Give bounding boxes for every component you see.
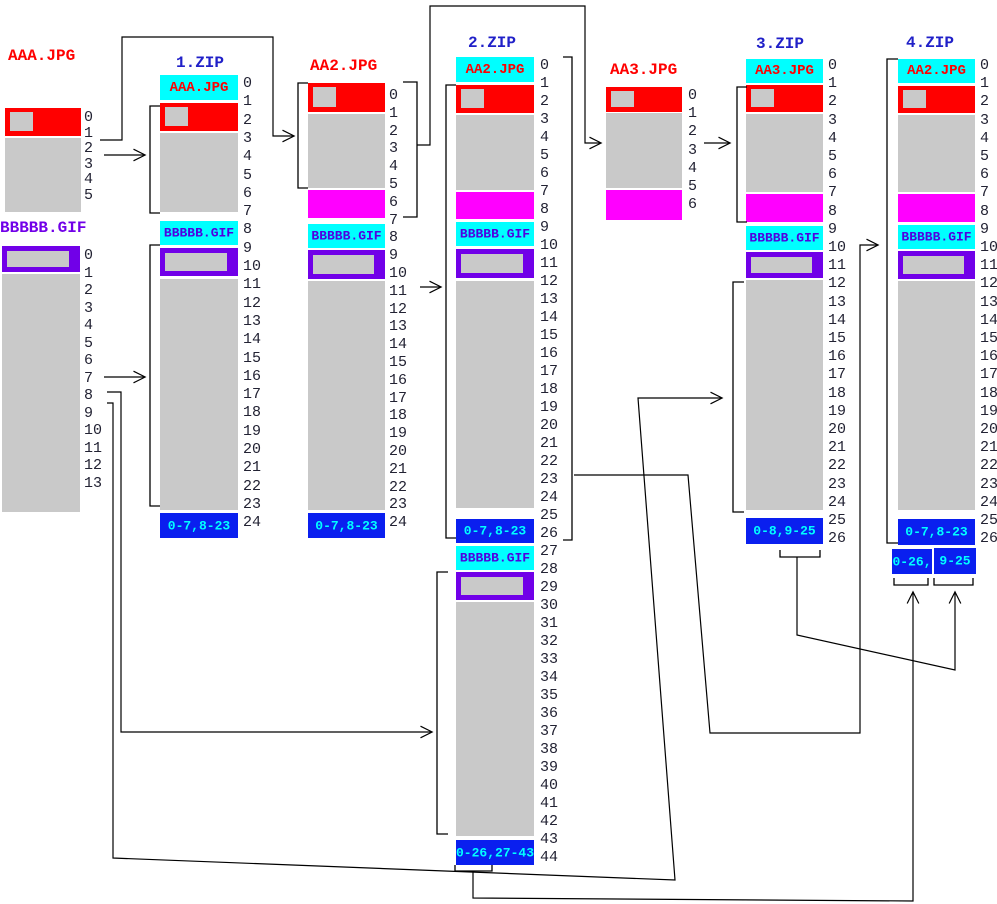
zip2-offsets-21: 21	[540, 436, 558, 452]
aa3-offsets-3: 3	[688, 143, 697, 159]
aaa-jpg-offsets-0: 0	[84, 110, 93, 126]
zip2-offsets-40: 40	[540, 778, 558, 794]
zip4-offsets-24: 24	[980, 495, 997, 511]
zip4-gif-data	[898, 281, 975, 510]
aa2-offsets-13: 13	[389, 319, 407, 335]
aaa-jpg-offsets-2: 2	[84, 141, 93, 157]
zip2-offsets-27: 27	[540, 544, 558, 560]
zip3-offsets-4: 4	[828, 131, 837, 147]
aa3-offsets-4: 4	[688, 161, 697, 177]
zip3-gif-local-header: BBBBB.GIF	[746, 226, 823, 250]
zip3-aa3-local-header: AA3.JPG	[746, 59, 823, 83]
zip4-aa2-local-header-label: AA2.JPG	[898, 64, 975, 78]
gray-square	[751, 89, 774, 107]
zip2-offsets-17: 17	[540, 364, 558, 380]
zip2-offsets-8: 8	[540, 202, 549, 218]
zip3-offsets-0: 0	[828, 58, 837, 74]
zip2-offsets-10: 10	[540, 238, 558, 254]
gray-inner-rect	[313, 255, 374, 274]
aa2-offsets-7: 7	[389, 213, 398, 229]
zip1-offsets-4: 4	[243, 149, 252, 165]
zip4-offsets-25: 25	[980, 513, 997, 529]
zip3-offsets-8: 8	[828, 204, 837, 220]
zip1-central-dir: 0-7,8-23	[160, 513, 238, 538]
zip2-offsets-41: 41	[540, 796, 558, 812]
zip2-gif-local-header-label: BBBBB.GIF	[456, 228, 534, 241]
aa3-new-data	[606, 190, 682, 220]
bbbbb-gif-offsets-2: 2	[84, 283, 93, 299]
zip1-central-dir-label: 0-7,8-23	[160, 519, 238, 532]
zip2-aa2-local-header: AA2.JPG	[456, 57, 534, 82]
zip4-offsets-17: 17	[980, 367, 997, 383]
gray-square	[903, 90, 926, 108]
zip1-offsets-2: 2	[243, 113, 252, 129]
zip2-offsets-44: 44	[540, 850, 558, 866]
gray-inner-rect	[165, 253, 227, 271]
gray-inner-rect	[903, 256, 964, 274]
aa2-offsets-24: 24	[389, 515, 407, 531]
zip1-offsets-6: 6	[243, 186, 252, 202]
zip4-offsets-1: 1	[980, 76, 989, 92]
zip2-aa2-data	[456, 115, 534, 190]
zip3-offsets-6: 6	[828, 167, 837, 183]
aa2-offsets-6: 6	[389, 195, 398, 211]
zip4-gif-local-header-label: BBBBB.GIF	[898, 231, 975, 244]
zip1-gif-purple	[160, 248, 238, 276]
zip3-offsets-10: 10	[828, 240, 846, 256]
gray-inner-rect	[751, 257, 812, 273]
aa3-jpg-title: AA3.JPG	[610, 62, 677, 78]
zip4-old-central-dir-label: 0-7,8-23	[898, 526, 975, 539]
zip4-offsets-21: 21	[980, 440, 997, 456]
zip4-cd-part1: 0-26,	[892, 549, 932, 574]
zip1-offsets-18: 18	[243, 405, 261, 421]
zip3-offsets-24: 24	[828, 495, 846, 511]
zip3-title: 3.ZIP	[756, 36, 804, 52]
zip3-offsets-25: 25	[828, 513, 846, 529]
aa3-offsets-2: 2	[688, 124, 697, 140]
zip2-offsets-1: 1	[540, 76, 549, 92]
aa2-offsets-5: 5	[389, 177, 398, 193]
bbbbb-gif-offsets-8: 8	[84, 388, 93, 404]
aa3-offsets-5: 5	[688, 179, 697, 195]
zip2-offsets-38: 38	[540, 742, 558, 758]
zip4-offsets-0: 0	[980, 58, 989, 74]
zip4-offsets-2: 2	[980, 94, 989, 110]
zip1-offsets-19: 19	[243, 424, 261, 440]
aa2-offsets-9: 9	[389, 248, 398, 264]
aa2-offsets-18: 18	[389, 408, 407, 424]
zip4-cd-part1-label: 0-26,	[892, 555, 932, 568]
zip4-offsets-18: 18	[980, 386, 997, 402]
bbbbb-gif-offsets-7: 7	[84, 371, 93, 387]
zip4-cd-part2-label: 9-25	[934, 555, 976, 568]
zip4-offsets-23: 23	[980, 477, 997, 493]
bbbbb-gif-offsets-5: 5	[84, 336, 93, 352]
gray-inner-rect	[461, 254, 523, 273]
zip4-gif-local-header: BBBBB.GIF	[898, 225, 975, 249]
zip2-offsets-26: 26	[540, 526, 558, 542]
zip3-offsets-14: 14	[828, 313, 846, 329]
zip3-offsets-21: 21	[828, 440, 846, 456]
zip1-gif-local-header: BBBBB.GIF	[160, 221, 238, 245]
gray-square	[313, 87, 336, 107]
zip1-offsets-23: 23	[243, 497, 261, 513]
zip2-offsets-4: 4	[540, 130, 549, 146]
zip3-offsets-15: 15	[828, 331, 846, 347]
zip3-offsets-5: 5	[828, 149, 837, 165]
zip2-offsets-3: 3	[540, 112, 549, 128]
zip4-old-central-dir: 0-7,8-23	[898, 519, 975, 545]
aa2-offsets-8: 8	[389, 230, 398, 246]
aa2-offsets-14: 14	[389, 337, 407, 353]
zip1-offsets-24: 24	[243, 515, 261, 531]
zip4-offsets-26: 26	[980, 531, 997, 547]
aa3-offsets-1: 1	[688, 106, 697, 122]
aa2-red	[308, 83, 385, 112]
zip4-aa2-data	[898, 115, 975, 192]
zip3-offsets-3: 3	[828, 113, 837, 129]
aa2-offsets-21: 21	[389, 462, 407, 478]
zip4-offsets-19: 19	[980, 404, 997, 420]
zip4-offsets-9: 9	[980, 222, 989, 238]
zip3-offsets-2: 2	[828, 94, 837, 110]
zip3-central-dir-label: 0-8,9-25	[746, 525, 823, 538]
aa2-offsets-0: 0	[389, 88, 398, 104]
zip1-aaa-local-header-label: AAA.JPG	[160, 81, 238, 95]
zip2-gif-purple	[456, 249, 534, 278]
zip4-offsets-10: 10	[980, 240, 997, 256]
zip2-offsets-22: 22	[540, 454, 558, 470]
zip4-offsets-12: 12	[980, 276, 997, 292]
aa2-offsets-2: 2	[389, 124, 398, 140]
zip4-gif-purple	[898, 251, 975, 279]
zip2-gif-local-header: BBBBB.GIF	[456, 222, 534, 246]
zip2-offsets-33: 33	[540, 652, 558, 668]
zip2-offsets-29: 29	[540, 580, 558, 596]
zip2-offsets-42: 42	[540, 814, 558, 830]
zip1-offsets-17: 17	[243, 387, 261, 403]
zip1-offsets-11: 11	[243, 277, 261, 293]
zip2-offsets-14: 14	[540, 310, 558, 326]
aa2-offsets-3: 3	[389, 141, 398, 157]
gray-inner-rect	[461, 577, 523, 595]
zip1-offsets-9: 9	[243, 241, 252, 257]
zip4-aa2-local-header: AA2.JPG	[898, 59, 975, 83]
zip2-offsets-28: 28	[540, 562, 558, 578]
zip2-offsets-31: 31	[540, 616, 558, 632]
zip2-offsets-2: 2	[540, 94, 549, 110]
zip1-aaa-local-header: AAA.JPG	[160, 75, 238, 100]
zip1-offsets-5: 5	[243, 168, 252, 184]
aa2-data	[308, 114, 385, 188]
zip2-old-central-dir: 0-7,8-23	[456, 519, 534, 543]
zip3-offsets-13: 13	[828, 295, 846, 311]
zip3-offsets-26: 26	[828, 531, 846, 547]
zip2-gif2-local-header: BBBBB.GIF	[456, 546, 534, 570]
zip-structure-diagram: AAA.JPGBBBBB.GIF1.ZIPAA2.JPG2.ZIPAA3.JPG…	[0, 0, 997, 904]
zip1-offsets-3: 3	[243, 131, 252, 147]
zip3-offsets-9: 9	[828, 222, 837, 238]
zip2-offsets-35: 35	[540, 688, 558, 704]
zip2-offsets-12: 12	[540, 274, 558, 290]
bbbbb-gif-offsets-11: 11	[84, 441, 102, 457]
aa2-offsets-10: 10	[389, 266, 407, 282]
zip1-gif-data	[160, 279, 238, 510]
aa2-offsets-23: 23	[389, 497, 407, 513]
aaa-jpg-offsets-5: 5	[84, 188, 93, 204]
zip3-aa3-local-header-label: AA3.JPG	[746, 64, 823, 78]
bbbbb-gif-offsets-12: 12	[84, 458, 102, 474]
zip4-offsets-13: 13	[980, 295, 997, 311]
zip3-aa3-data	[746, 114, 823, 192]
aa2-offsets-19: 19	[389, 426, 407, 442]
zip4-offsets-22: 22	[980, 458, 997, 474]
zip3-offsets-20: 20	[828, 422, 846, 438]
zip4-offsets-14: 14	[980, 313, 997, 329]
zip2-old-central-dir-label: 0-7,8-23	[456, 525, 534, 538]
aa2-offsets-16: 16	[389, 373, 407, 389]
zip2-offsets-13: 13	[540, 292, 558, 308]
zip1-offsets-20: 20	[243, 442, 261, 458]
zip4-offsets-16: 16	[980, 349, 997, 365]
aa2-offsets-17: 17	[389, 391, 407, 407]
aaa-jpg-offsets-4: 4	[84, 172, 93, 188]
zip1-gif-local-header-label: BBBBB.GIF	[160, 227, 238, 240]
zip3-aa3-new-data	[746, 194, 823, 222]
zip2-offsets-39: 39	[540, 760, 558, 776]
zip3-offsets-1: 1	[828, 76, 837, 92]
gray-square	[165, 107, 188, 126]
zip2-offsets-36: 36	[540, 706, 558, 722]
aa2-new-data	[308, 190, 385, 218]
zip4-aa2-red	[898, 86, 975, 113]
zip2-offsets-9: 9	[540, 220, 549, 236]
zip2-offsets-16: 16	[540, 346, 558, 362]
zip2-offsets-34: 34	[540, 670, 558, 686]
zip2-aa2-red	[456, 85, 534, 113]
zip4-offsets-3: 3	[980, 113, 989, 129]
zip1-offsets-12: 12	[243, 296, 261, 312]
bbbbb-gif-offsets-3: 3	[84, 301, 93, 317]
aa2-gif-local-header: BBBBB.GIF	[308, 224, 385, 248]
zip4-cd-part2: 9-25	[934, 548, 976, 574]
zip4-offsets-11: 11	[980, 258, 997, 274]
zip2-offsets-23: 23	[540, 472, 558, 488]
aa3-offsets-6: 6	[688, 197, 697, 213]
zip3-aa3-red	[746, 85, 823, 112]
aa3-red	[606, 87, 682, 112]
zip1-offsets-7: 7	[243, 204, 252, 220]
aa2-offsets-12: 12	[389, 302, 407, 318]
aa2-jpg-title: AA2.JPG	[310, 58, 377, 74]
zip4-offsets-4: 4	[980, 131, 989, 147]
zip2-offsets-11: 11	[540, 256, 558, 272]
bbbbb-gif-title: BBBBB.GIF	[0, 220, 86, 236]
aa2-offsets-4: 4	[389, 159, 398, 175]
zip2-aa2-local-header-label: AA2.JPG	[456, 63, 534, 77]
zip1-offsets-0: 0	[243, 76, 252, 92]
zip2-gif-data	[456, 281, 534, 508]
bbbbb-gif-offsets-13: 13	[84, 476, 102, 492]
aa2-offsets-11: 11	[389, 284, 407, 300]
aa3-data	[606, 113, 682, 188]
bbbbb-gif-data-block	[2, 274, 80, 512]
zip1-title: 1.ZIP	[176, 55, 224, 71]
zip2-offsets-18: 18	[540, 382, 558, 398]
zip2-offsets-7: 7	[540, 184, 549, 200]
zip4-offsets-6: 6	[980, 167, 989, 183]
aa2-central-dir: 0-7,8-23	[308, 513, 385, 538]
zip1-aaa-red	[160, 103, 238, 131]
aaa-jpg-header-block	[5, 108, 81, 136]
zip1-offsets-8: 8	[243, 222, 252, 238]
zip1-offsets-22: 22	[243, 479, 261, 495]
zip1-offsets-10: 10	[243, 259, 261, 275]
zip4-offsets-15: 15	[980, 331, 997, 347]
zip3-gif-local-header-label: BBBBB.GIF	[746, 232, 823, 245]
zip2-offsets-5: 5	[540, 148, 549, 164]
bbbbb-gif-offsets-6: 6	[84, 353, 93, 369]
zip3-offsets-23: 23	[828, 477, 846, 493]
aaa-jpg-title: AAA.JPG	[8, 48, 75, 64]
zip4-offsets-8: 8	[980, 204, 989, 220]
zip2-offsets-24: 24	[540, 490, 558, 506]
gray-square	[611, 91, 634, 107]
zip3-offsets-7: 7	[828, 185, 837, 201]
zip3-offsets-22: 22	[828, 458, 846, 474]
zip1-offsets-16: 16	[243, 369, 261, 385]
zip3-gif-data	[746, 280, 823, 510]
zip3-gif-purple	[746, 252, 823, 278]
zip1-offsets-13: 13	[243, 314, 261, 330]
zip2-central-dir-label: 0-26,27-43	[456, 846, 534, 859]
aa2-gif-data	[308, 281, 385, 510]
zip3-offsets-11: 11	[828, 258, 846, 274]
zip2-gif2-purple	[456, 572, 534, 600]
zip3-offsets-19: 19	[828, 404, 846, 420]
zip2-offsets-25: 25	[540, 508, 558, 524]
zip2-offsets-6: 6	[540, 166, 549, 182]
bbbbb-gif-header-block	[2, 246, 80, 272]
aa2-gif-local-header-label: BBBBB.GIF	[308, 230, 385, 243]
aa3-offsets-0: 0	[688, 88, 697, 104]
zip4-offsets-20: 20	[980, 422, 997, 438]
zip1-offsets-1: 1	[243, 94, 252, 110]
zip1-offsets-21: 21	[243, 460, 261, 476]
aa2-offsets-1: 1	[389, 106, 398, 122]
zip3-offsets-12: 12	[828, 276, 846, 292]
gray-inner-rect	[7, 251, 69, 267]
aa2-gif-purple	[308, 250, 385, 279]
zip2-offsets-0: 0	[540, 58, 549, 74]
zip3-offsets-16: 16	[828, 349, 846, 365]
zip2-offsets-19: 19	[540, 400, 558, 416]
zip2-central-dir: 0-26,27-43	[456, 840, 534, 865]
zip1-aaa-data	[160, 133, 238, 212]
zip1-offsets-14: 14	[243, 332, 261, 348]
zip1-offsets-15: 15	[243, 351, 261, 367]
aaa-jpg-data-block	[5, 138, 81, 212]
gray-square	[461, 89, 484, 108]
zip3-offsets-18: 18	[828, 386, 846, 402]
bbbbb-gif-offsets-10: 10	[84, 423, 102, 439]
zip2-offsets-37: 37	[540, 724, 558, 740]
aa2-offsets-22: 22	[389, 480, 407, 496]
gray-square	[10, 112, 33, 131]
zip3-central-dir: 0-8,9-25	[746, 518, 823, 544]
bbbbb-gif-offsets-0: 0	[84, 248, 93, 264]
aa2-central-dir-label: 0-7,8-23	[308, 519, 385, 532]
aa2-offsets-20: 20	[389, 444, 407, 460]
bbbbb-gif-offsets-9: 9	[84, 406, 93, 422]
zip2-gif2-data	[456, 602, 534, 836]
zip3-offsets-17: 17	[828, 367, 846, 383]
zip4-offsets-5: 5	[980, 149, 989, 165]
aa2-offsets-15: 15	[389, 355, 407, 371]
bbbbb-gif-offsets-1: 1	[84, 266, 93, 282]
zip2-offsets-15: 15	[540, 328, 558, 344]
zip4-aa2-new-data	[898, 194, 975, 222]
zip2-title: 2.ZIP	[468, 35, 516, 51]
zip2-offsets-43: 43	[540, 832, 558, 848]
zip2-gif2-local-header-label: BBBBB.GIF	[456, 552, 534, 565]
zip4-title: 4.ZIP	[906, 35, 954, 51]
zip2-aa2-new-data	[456, 192, 534, 219]
zip2-offsets-20: 20	[540, 418, 558, 434]
bbbbb-gif-offsets-4: 4	[84, 318, 93, 334]
zip2-offsets-30: 30	[540, 598, 558, 614]
zip2-offsets-32: 32	[540, 634, 558, 650]
zip4-offsets-7: 7	[980, 185, 989, 201]
